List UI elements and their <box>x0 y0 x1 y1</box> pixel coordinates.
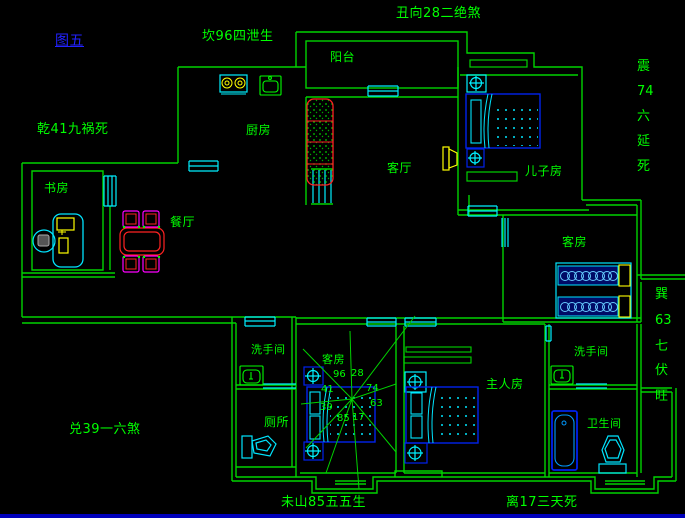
wall-bottom-outer <box>232 471 676 493</box>
compass-number-85: 85 <box>337 414 350 424</box>
label-dui-west: 兑39一六煞 <box>69 423 141 436</box>
room-label-dining: 餐厅 <box>170 216 195 228</box>
window-washroom-left-icon <box>245 317 275 326</box>
pillow-icon <box>619 296 630 317</box>
nightstand-master-icon <box>405 372 426 392</box>
ac-unit-icon <box>304 367 323 385</box>
bed-master-icon <box>406 387 478 443</box>
ac-unit-icon <box>467 75 486 92</box>
desk-chair-icon <box>33 230 55 252</box>
sink-left-icon <box>240 366 263 385</box>
bottom-blue-bar <box>0 514 685 518</box>
window-washright-divider-icon <box>576 384 607 388</box>
compass-number-63: 63 <box>370 399 383 409</box>
label-zhen-char-2: 六 <box>637 110 650 123</box>
desk-icon <box>53 214 83 267</box>
room-label-washroom-left: 洗手间 <box>251 344 286 355</box>
nightstand-master2-icon <box>405 443 427 463</box>
label-li-south: 离17三天死 <box>506 496 578 509</box>
toilet-right-icon <box>599 436 626 473</box>
room-label-study: 书房 <box>44 182 69 194</box>
room-label-living: 客厅 <box>387 162 412 174</box>
room-label-guest-right: 客房 <box>562 236 587 248</box>
room-label-kitchen: 厨房 <box>246 124 271 136</box>
dining-chairs-icon <box>123 211 160 272</box>
label-chou-direction: 丑向28二绝煞 <box>396 7 481 20</box>
sink-right-icon <box>551 366 573 384</box>
room-label-balcony: 阳台 <box>330 51 355 63</box>
compass-number-74: 74 <box>366 384 379 394</box>
ac-unit-icon <box>304 442 323 460</box>
tv-icon <box>443 147 457 170</box>
label-kan-north: 坎96四泄生 <box>202 30 274 43</box>
room-label-toilet: 厕所 <box>264 416 289 428</box>
window-study-icon <box>104 176 116 206</box>
computer-icon <box>57 218 74 230</box>
label-xun-char-2: 七 <box>655 340 668 353</box>
label-weishan-southwest: 未山85五五生 <box>281 496 366 509</box>
compass-number-96: 96 <box>333 370 346 380</box>
bed-sons-icon <box>466 94 540 148</box>
window-master-icon <box>405 318 436 326</box>
room-label-sons-room: 儿子房 <box>525 165 563 177</box>
label-xun-char-3: 伏 <box>655 364 668 377</box>
compass-number-39: 39 <box>320 403 333 413</box>
figure-label: 图五 <box>55 34 84 48</box>
closet-icon <box>470 60 527 67</box>
window-kitchen-icon <box>189 161 218 171</box>
room-label-master: 主人房 <box>486 378 524 390</box>
compass-number-28: 28 <box>351 369 364 379</box>
bathtub-icon <box>552 411 577 470</box>
label-xun-char-4: 旺 <box>655 390 668 403</box>
nightstand-sons-icon <box>467 149 484 167</box>
wall-corridor <box>22 317 296 323</box>
room-label-bathroom: 卫生间 <box>587 418 622 429</box>
window-guest-center-icon <box>367 318 396 326</box>
label-zhen-char-4: 死 <box>637 160 650 173</box>
toilet-left-icon <box>242 436 276 458</box>
room-label-guest-center: 客房 <box>322 354 345 365</box>
wall-balcony <box>306 41 458 88</box>
kitchen-sink-icon <box>260 76 281 95</box>
window-washleft-divider-icon <box>263 384 296 388</box>
compass-number-41: 41 <box>321 385 334 395</box>
dining-table-icon <box>120 228 164 255</box>
sofa-icon <box>307 99 333 185</box>
pillow-icon <box>619 265 630 286</box>
room-label-washroom-right: 洗手间 <box>574 346 609 357</box>
label-xun-char-0: 巽 <box>655 288 668 301</box>
floor-plan-canvas <box>0 0 685 518</box>
stove-icon <box>220 75 247 94</box>
label-qian-northwest: 乾41九祸死 <box>37 123 109 136</box>
label-zhen-char-1: 74 <box>637 85 654 98</box>
label-xun-char-1: 63 <box>655 314 672 327</box>
compass-number-17: 17 <box>352 413 365 423</box>
shelf-master-icon <box>404 347 471 363</box>
twin-beds-icon <box>556 263 631 318</box>
label-zhen-char-0: 震 <box>637 60 650 73</box>
label-zhen-char-3: 延 <box>637 135 650 148</box>
cad-floorplan-screenshot: 图五 坎96四泄生 丑向28二绝煞 乾41九祸死 兑39一六煞 未山85五五生 … <box>0 0 685 518</box>
shelf-sons-icon <box>467 172 517 181</box>
